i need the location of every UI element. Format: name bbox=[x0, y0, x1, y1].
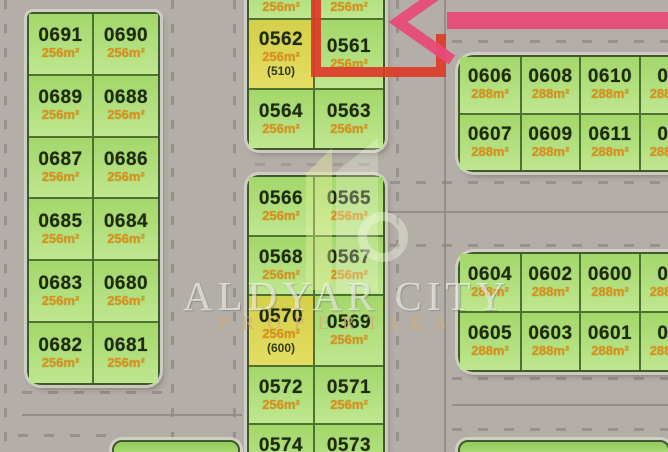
plot-area: 288m² bbox=[471, 344, 509, 359]
plot-0690[interactable]: 0690256m² bbox=[94, 14, 158, 74]
plot-number: 0690 bbox=[104, 26, 148, 46]
plot-area: 256m² bbox=[107, 232, 145, 247]
plot-0574[interactable]: 0574 bbox=[249, 425, 313, 452]
plot-number: 05 bbox=[657, 265, 668, 285]
plot-area: 256m² bbox=[42, 170, 80, 185]
plot-0681[interactable]: 0681256m² bbox=[94, 323, 158, 383]
plot-number: 0601 bbox=[588, 324, 632, 344]
plot-0607[interactable]: 0607288m² bbox=[460, 115, 520, 171]
plot-0565[interactable]: 0565256m² bbox=[315, 177, 383, 235]
plot-number: 0567 bbox=[327, 248, 371, 268]
plot-number: 0606 bbox=[468, 67, 512, 87]
plot-number: 0574 bbox=[259, 436, 303, 452]
plot-0570[interactable]: 0570256m²(600) bbox=[249, 296, 313, 365]
plot-0684[interactable]: 0684256m² bbox=[94, 199, 158, 259]
plot-number: 0572 bbox=[259, 378, 303, 398]
plot-area: 288m² bbox=[532, 87, 570, 102]
plot-number: 0604 bbox=[468, 265, 512, 285]
plot-area: 256m² bbox=[330, 268, 368, 283]
plot-number: 0603 bbox=[528, 324, 572, 344]
plot-0683[interactable]: 0683256m² bbox=[29, 261, 92, 321]
plot-number: 0681 bbox=[104, 336, 148, 356]
plot-0564[interactable]: 0564256m² bbox=[249, 90, 313, 148]
plot-number: 0682 bbox=[38, 336, 82, 356]
plot-0688[interactable]: 0688256m² bbox=[94, 76, 158, 136]
plot-0609[interactable]: 0609288m² bbox=[522, 115, 579, 171]
plot-cell[interactable]: 256m² bbox=[249, 0, 313, 18]
plot-0608[interactable]: 0608288m² bbox=[522, 57, 579, 113]
plot-area: 288m² bbox=[471, 145, 509, 160]
plot-area: 256m² bbox=[330, 0, 368, 15]
lane-centerline bbox=[22, 414, 242, 416]
plot-0685[interactable]: 0685256m² bbox=[29, 199, 92, 259]
plot-0682[interactable]: 0682256m² bbox=[29, 323, 92, 383]
plot-area: 256m² bbox=[42, 46, 80, 61]
plot-area: 288m² bbox=[532, 285, 570, 300]
plot-area: 256m² bbox=[262, 398, 300, 413]
plot-area: 256m² bbox=[330, 398, 368, 413]
plot-area: 288m² bbox=[650, 344, 668, 359]
plot-area: 256m² bbox=[42, 108, 80, 123]
plot-0605[interactable]: 0605288m² bbox=[460, 313, 520, 370]
plot-area: 256m² bbox=[42, 232, 80, 247]
plot-number: 06 bbox=[657, 67, 668, 87]
plot-number: 0563 bbox=[327, 102, 371, 122]
lane-centerline bbox=[388, 211, 668, 213]
site-plan: 0691256m²0690256m²0689256m²0688256m²0687… bbox=[0, 0, 668, 452]
lane-marking bbox=[390, 244, 668, 247]
lane-marking bbox=[452, 40, 668, 43]
plot-area: 256m² bbox=[107, 356, 145, 371]
block-edge-bottom-right bbox=[458, 440, 668, 452]
block-edge-bottom-left bbox=[112, 440, 240, 452]
plot-0691[interactable]: 0691256m² bbox=[29, 14, 92, 74]
plot-area: 288m² bbox=[650, 87, 668, 102]
plot-number: 0573 bbox=[327, 436, 371, 452]
plot-area: 288m² bbox=[532, 344, 570, 359]
plot-number: 0684 bbox=[104, 212, 148, 232]
lane-marking bbox=[18, 434, 112, 437]
lane-marking bbox=[4, 0, 7, 452]
plot-0566[interactable]: 0566256m² bbox=[249, 177, 313, 235]
plot-number: 0687 bbox=[38, 150, 82, 170]
block-0560s-main: 0566256m²0565256m²0568256m²0567256m²0570… bbox=[247, 175, 385, 452]
plot-area: 256m² bbox=[107, 170, 145, 185]
plot-number: 0565 bbox=[327, 189, 371, 209]
plot-area: 288m² bbox=[591, 87, 629, 102]
plot-number: 0566 bbox=[259, 189, 303, 209]
plot-area: 256m² bbox=[107, 294, 145, 309]
plot-number: 0602 bbox=[528, 265, 572, 285]
plot-0561[interactable]: 0561256m² bbox=[315, 20, 383, 88]
plot-number: 0688 bbox=[104, 88, 148, 108]
plot-number: 0605 bbox=[468, 324, 512, 344]
lane-marking bbox=[233, 0, 236, 452]
plot-0610[interactable]: 0610288m² bbox=[581, 57, 639, 113]
plot-0571[interactable]: 0571256m² bbox=[315, 367, 383, 423]
plot-number: 0689 bbox=[38, 88, 82, 108]
plot-0680[interactable]: 0680256m² bbox=[94, 261, 158, 321]
lane-marking bbox=[22, 391, 168, 394]
plot-area: 288m² bbox=[650, 145, 668, 160]
plot-0602[interactable]: 0602288m² bbox=[522, 254, 579, 311]
plot-0569[interactable]: 0569256m² bbox=[315, 296, 383, 365]
plot-area: 256m² bbox=[107, 108, 145, 123]
plot-number: 0611 bbox=[588, 125, 631, 145]
lane-marking bbox=[171, 0, 174, 452]
plot-area: 288m² bbox=[591, 285, 629, 300]
plot-note: (510) bbox=[267, 65, 295, 78]
block-0680s: 0691256m²0690256m²0689256m²0688256m²0687… bbox=[27, 12, 160, 385]
plot-area: 256m² bbox=[262, 122, 300, 137]
plot-area: 288m² bbox=[591, 344, 629, 359]
plot-note: (600) bbox=[267, 342, 295, 355]
plot-area: 288m² bbox=[532, 145, 570, 160]
plot-0568[interactable]: 0568256m² bbox=[249, 237, 313, 294]
plot-0606[interactable]: 0606288m² bbox=[460, 57, 520, 113]
plot-area: 256m² bbox=[330, 333, 368, 348]
plot-0572[interactable]: 0572256m² bbox=[249, 367, 313, 423]
plot-area: 288m² bbox=[471, 87, 509, 102]
plot-area: 288m² bbox=[471, 285, 509, 300]
lane-marking bbox=[390, 181, 668, 184]
plot-area: 256m² bbox=[42, 294, 80, 309]
plot-0567[interactable]: 0567256m² bbox=[315, 237, 383, 294]
plot-number: 0680 bbox=[104, 274, 148, 294]
plot-number: 0564 bbox=[259, 102, 303, 122]
plot-number: 0561 bbox=[327, 37, 371, 57]
plot-0562[interactable]: 0562256m²(510) bbox=[249, 20, 313, 88]
plot-05[interactable]: 05288m² bbox=[641, 313, 668, 370]
plot-number: 06 bbox=[657, 125, 668, 145]
lane-marking bbox=[255, 163, 380, 166]
plot-cell[interactable]: 256m² bbox=[315, 0, 383, 18]
lane-centerline bbox=[452, 404, 668, 406]
plot-area: 256m² bbox=[330, 57, 368, 72]
plot-number: 0568 bbox=[259, 248, 303, 268]
plot-area: 256m² bbox=[42, 356, 80, 371]
plot-area: 256m² bbox=[262, 209, 300, 224]
plot-area: 256m² bbox=[262, 327, 300, 342]
lane-marking bbox=[452, 428, 668, 431]
plot-number: 0610 bbox=[588, 67, 632, 87]
plot-05[interactable]: 05288m² bbox=[641, 254, 668, 311]
plot-0573[interactable]: 0573 bbox=[315, 425, 383, 452]
plot-0603[interactable]: 0603288m² bbox=[522, 313, 579, 370]
plot-area: 256m² bbox=[107, 46, 145, 61]
plot-area: 256m² bbox=[330, 209, 368, 224]
plot-06[interactable]: 06288m² bbox=[641, 115, 668, 171]
plot-0600[interactable]: 0600288m² bbox=[581, 254, 639, 311]
plot-number: 0683 bbox=[38, 274, 82, 294]
plot-area: 256m² bbox=[262, 0, 300, 15]
plot-number: 0570 bbox=[259, 307, 303, 327]
plot-number: 0571 bbox=[327, 378, 371, 398]
lane-marking bbox=[452, 377, 668, 380]
plot-number: 0600 bbox=[588, 265, 632, 285]
plot-area: 288m² bbox=[650, 285, 668, 300]
plot-number: 0691 bbox=[38, 26, 82, 46]
plot-number: 0608 bbox=[528, 67, 572, 87]
plot-number: 0569 bbox=[327, 313, 371, 333]
plot-0689[interactable]: 0689256m² bbox=[29, 76, 92, 136]
plot-area: 288m² bbox=[591, 145, 629, 160]
plot-area: 256m² bbox=[262, 268, 300, 283]
plot-number: 05 bbox=[657, 324, 668, 344]
block-0560s-top: 256m²256m²0562256m²(510)0561256m²0564256… bbox=[247, 0, 385, 150]
plot-number: 0609 bbox=[528, 125, 572, 145]
plot-number: 0562 bbox=[259, 30, 303, 50]
plot-number: 0686 bbox=[104, 150, 148, 170]
plot-number: 0685 bbox=[38, 212, 82, 232]
plot-area: 256m² bbox=[330, 122, 368, 137]
plot-0563[interactable]: 0563256m² bbox=[315, 90, 383, 148]
lane-marking bbox=[396, 0, 399, 452]
arrow-shaft bbox=[447, 12, 668, 29]
block-0600-0605: 0604288m²0602288m²0600288m²05288m²060528… bbox=[458, 252, 668, 372]
plot-number: 0607 bbox=[468, 125, 512, 145]
plot-area: 256m² bbox=[262, 50, 300, 65]
plot-06[interactable]: 06288m² bbox=[641, 57, 668, 113]
plot-0686[interactable]: 0686256m² bbox=[94, 138, 158, 198]
block-0606-0611: 0606288m²0608288m²0610288m²06288m²060728… bbox=[458, 55, 668, 172]
plot-0601[interactable]: 0601288m² bbox=[581, 313, 639, 370]
plot-0604[interactable]: 0604288m² bbox=[460, 254, 520, 311]
lane-centerline bbox=[444, 0, 446, 452]
plot-0611[interactable]: 0611288m² bbox=[581, 115, 639, 171]
plot-0687[interactable]: 0687256m² bbox=[29, 138, 92, 198]
